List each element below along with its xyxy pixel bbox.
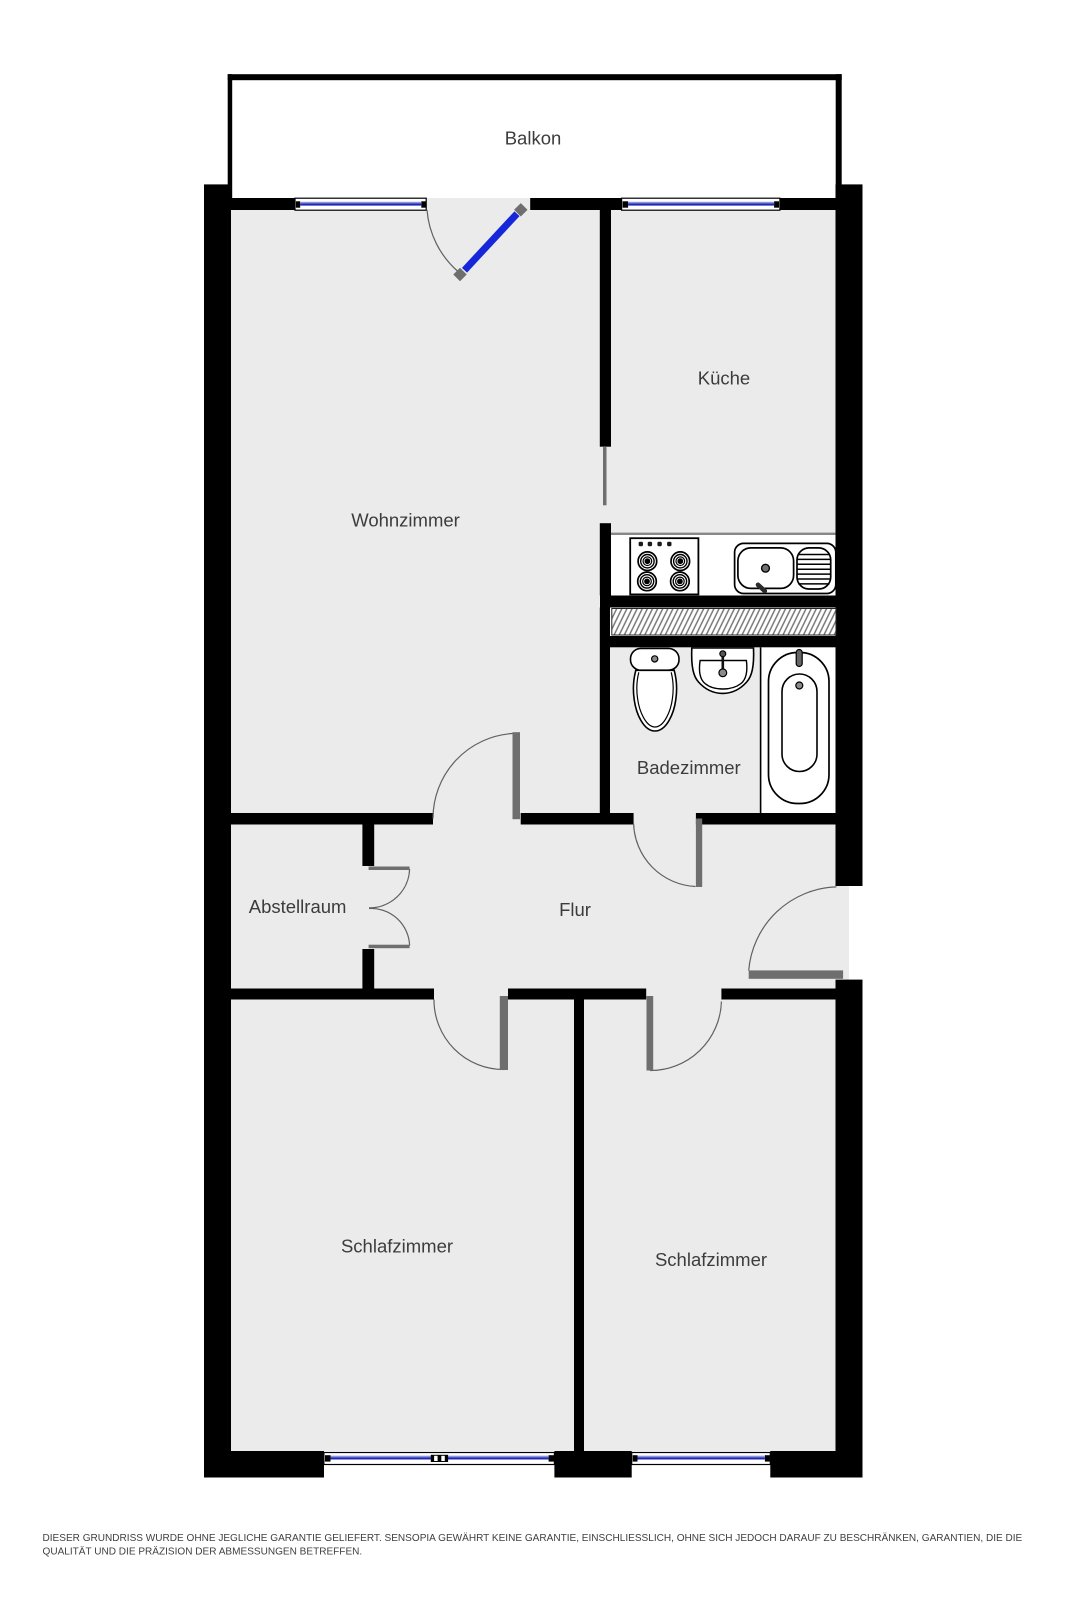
svg-text:Küche: Küche xyxy=(698,367,750,388)
svg-text:Badezimmer: Badezimmer xyxy=(637,757,741,778)
svg-text:Flur: Flur xyxy=(559,899,591,920)
svg-text:Schlafzimmer: Schlafzimmer xyxy=(655,1249,767,1270)
svg-text:QUALITÄT UND DIE PRÄZISION DER: QUALITÄT UND DIE PRÄZISION DER ABMESSUNG… xyxy=(43,1546,363,1558)
svg-text:Schlafzimmer: Schlafzimmer xyxy=(341,1236,453,1257)
svg-text:Abstellraum: Abstellraum xyxy=(249,896,347,917)
svg-text:Balkon: Balkon xyxy=(505,127,562,148)
svg-text:Wohnzimmer: Wohnzimmer xyxy=(351,510,460,531)
svg-text:DIESER GRUNDRISS WURDE OHNE JE: DIESER GRUNDRISS WURDE OHNE JEGLICHE GAR… xyxy=(43,1532,1023,1544)
